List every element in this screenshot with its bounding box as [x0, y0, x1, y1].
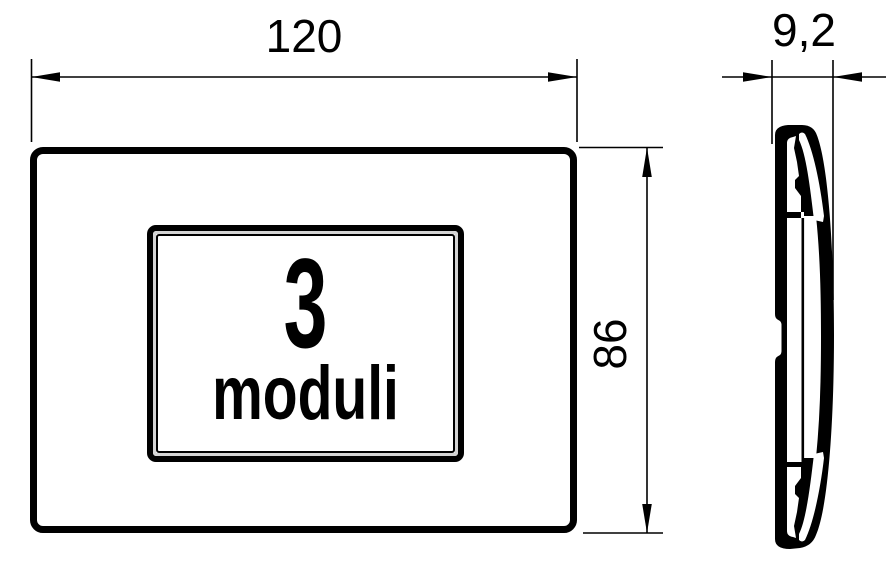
width-dimension-lines	[32, 59, 578, 142]
depth-dimension-label: 9,2	[722, 7, 886, 53]
technical-drawing-canvas: 3 moduli	[0, 0, 893, 577]
arrowhead-down-icon	[642, 504, 652, 533]
height-dimension-label: 86	[580, 284, 640, 404]
arrowhead-inward-right-icon	[743, 72, 772, 82]
side-view-profile	[775, 125, 834, 549]
width-dimension-label: 120	[31, 13, 577, 59]
inner-frame-edge-line	[802, 218, 805, 462]
arrowhead-inward-left-icon	[833, 72, 862, 82]
arrowhead-up-icon	[642, 148, 652, 178]
arrowhead-right-icon	[548, 72, 577, 82]
arrowhead-left-icon	[32, 72, 61, 82]
dimension-and-profile-graphics	[0, 0, 893, 577]
